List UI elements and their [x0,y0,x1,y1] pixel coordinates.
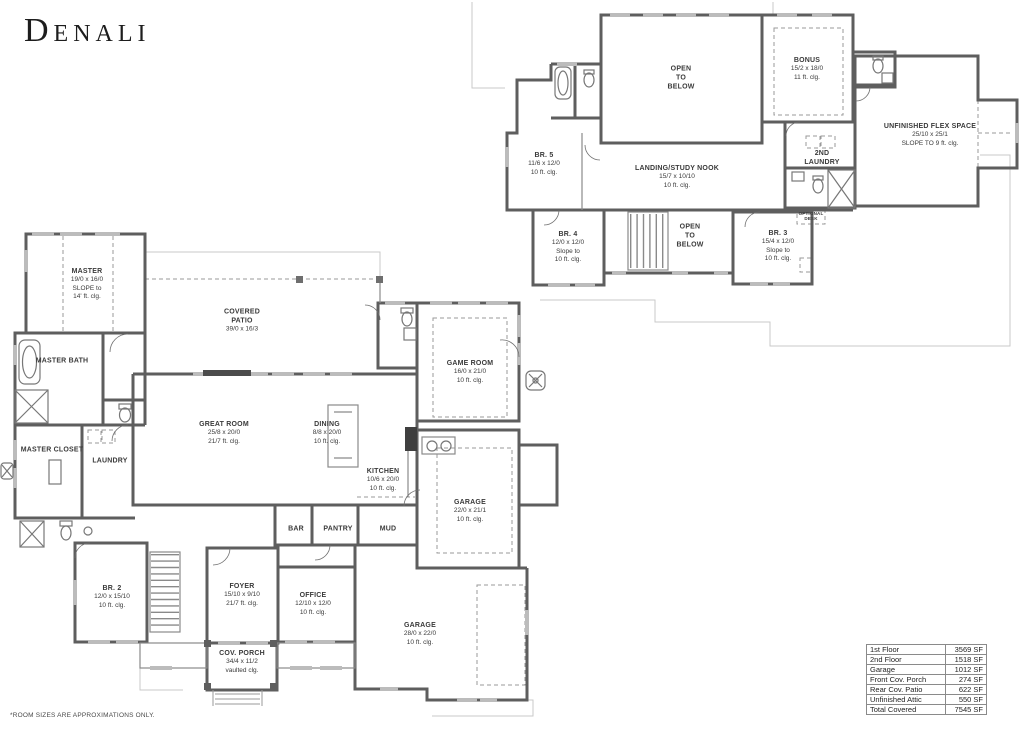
sink [404,328,416,340]
room-label-master: MASTER19/0 x 16/0SLOPE to14' ft. clg. [71,267,103,301]
sink [84,527,92,535]
row-value: 1518 SF [946,655,987,665]
table-row: 2nd Floor1518 SF [867,655,987,665]
toilet [873,56,883,73]
table-row: Rear Cov. Patio622 SF [867,685,987,695]
row-value: 1012 SF [946,665,987,675]
shower [20,521,44,547]
table-row: 1st Floor3569 SF [867,645,987,655]
porch-column [270,683,277,690]
interior-lines [140,133,668,668]
shower [15,390,48,423]
range [405,427,417,451]
fireplace [203,370,251,376]
porch-steps [213,690,262,706]
row-value: 3569 SF [946,645,987,655]
room-label-bonus: BONUS15/2 x 18/011 ft. clg. [791,56,823,82]
room-label-master-closet: MASTER CLOSET [21,445,84,454]
floorplan-drawing [0,0,1024,731]
row-value: 622 SF [946,685,987,695]
toilet [60,521,72,540]
sink [882,73,893,83]
porch-column [204,640,211,647]
room-label-office: OFFICE12/10 x 12/010 ft. clg. [295,591,331,617]
room-label-open-to-below-lower: OPENTOBELOW [676,222,703,249]
table-row: Unfinished Attic550 SF [867,695,987,705]
row-label: Garage [867,665,946,675]
toilet [584,70,594,87]
room-label-br3: BR. 315/4 x 12/0Slope to10 ft. clg. [762,229,794,263]
row-label: 1st Floor [867,645,946,655]
closet-island [49,460,61,484]
utility-sink [441,441,451,451]
room-label-2nd-laundry: 2NDLAUNDRY [804,149,839,167]
room-label-cov-porch: COV. PORCH34/4 x 11/2vaulted clg. [219,649,265,675]
door-arcs [75,87,870,565]
room-label-foyer: FOYER15/10 x 9/1021/7 ft. clg. [224,582,260,608]
toilet [401,308,413,326]
room-label-bar: BAR [288,524,304,533]
footnote: *ROOM SIZES ARE APPROXIMATIONS ONLY. [10,712,155,719]
utility-sink [427,441,437,451]
table-row: Garage1012 SF [867,665,987,675]
patio-post [296,276,303,283]
sink [792,172,804,181]
room-label-great-room: GREAT ROOM25/8 x 20/021/7 ft. clg. [199,420,249,446]
room-label-garage-rear: GARAGE28/0 x 22/010 ft. clg. [404,621,436,647]
toilet [813,176,823,193]
room-label-br4: BR. 412/0 x 12/0Slope to10 ft. clg. [552,230,584,264]
room-label-flex-space: UNFINISHED FLEX SPACE25/10 x 25/1SLOPE T… [884,122,976,148]
doorbell-icon [1,463,13,479]
table-row: Front Cov. Porch274 SF [867,675,987,685]
room-label-master-bath: MASTER BATH [36,356,89,365]
porch-column [270,640,277,647]
porch-column [204,683,211,690]
row-label: 2nd Floor [867,655,946,665]
room-label-kitchen: KITCHEN10/6 x 20/010 ft. clg. [367,467,400,493]
row-value: 274 SF [946,675,987,685]
room-label-br5: BR. 511/6 x 12/010 ft. clg. [528,151,560,177]
room-label-covered-patio: COVEREDPATIO39/0 x 16/3 [224,308,260,335]
row-value: 7545 SF [946,705,987,715]
room-label-pantry: PANTRY [323,524,352,533]
area-summary-table: 1st Floor3569 SF 2nd Floor1518 SF Garage… [866,644,987,715]
room-label-garage-side: GARAGE22/0 x 21/110 ft. clg. [454,498,486,524]
ceiling-fan-icon [526,371,545,390]
row-label: Unfinished Attic [867,695,946,705]
room-label-br2: BR. 212/0 x 15/1010 ft. clg. [94,584,130,610]
patio-post [376,276,383,283]
row-label: Rear Cov. Patio [867,685,946,695]
room-label-dining: DINING8/8 x 20/010 ft. clg. [313,420,342,446]
room-label-game-room: GAME ROOM16/0 x 21/010 ft. clg. [447,359,494,385]
room-label-optional-desk: OPTIONALDESK [799,211,824,221]
room-label-mud: MUD [380,524,397,533]
row-label: Front Cov. Porch [867,675,946,685]
toilet [119,404,131,422]
shower [828,170,855,208]
room-label-open-to-below-upper: OPENTOBELOW [667,64,694,91]
table-row: Total Covered7545 SF [867,705,987,715]
row-label: Total Covered [867,705,946,715]
row-value: 550 SF [946,695,987,705]
walls [15,15,1017,700]
floorplan-page: Denali [0,0,1024,731]
room-label-landing: LANDING/STUDY NOOK15/7 x 10/1010 ft. clg… [635,164,719,190]
room-label-laundry: LAUNDRY [92,456,127,465]
